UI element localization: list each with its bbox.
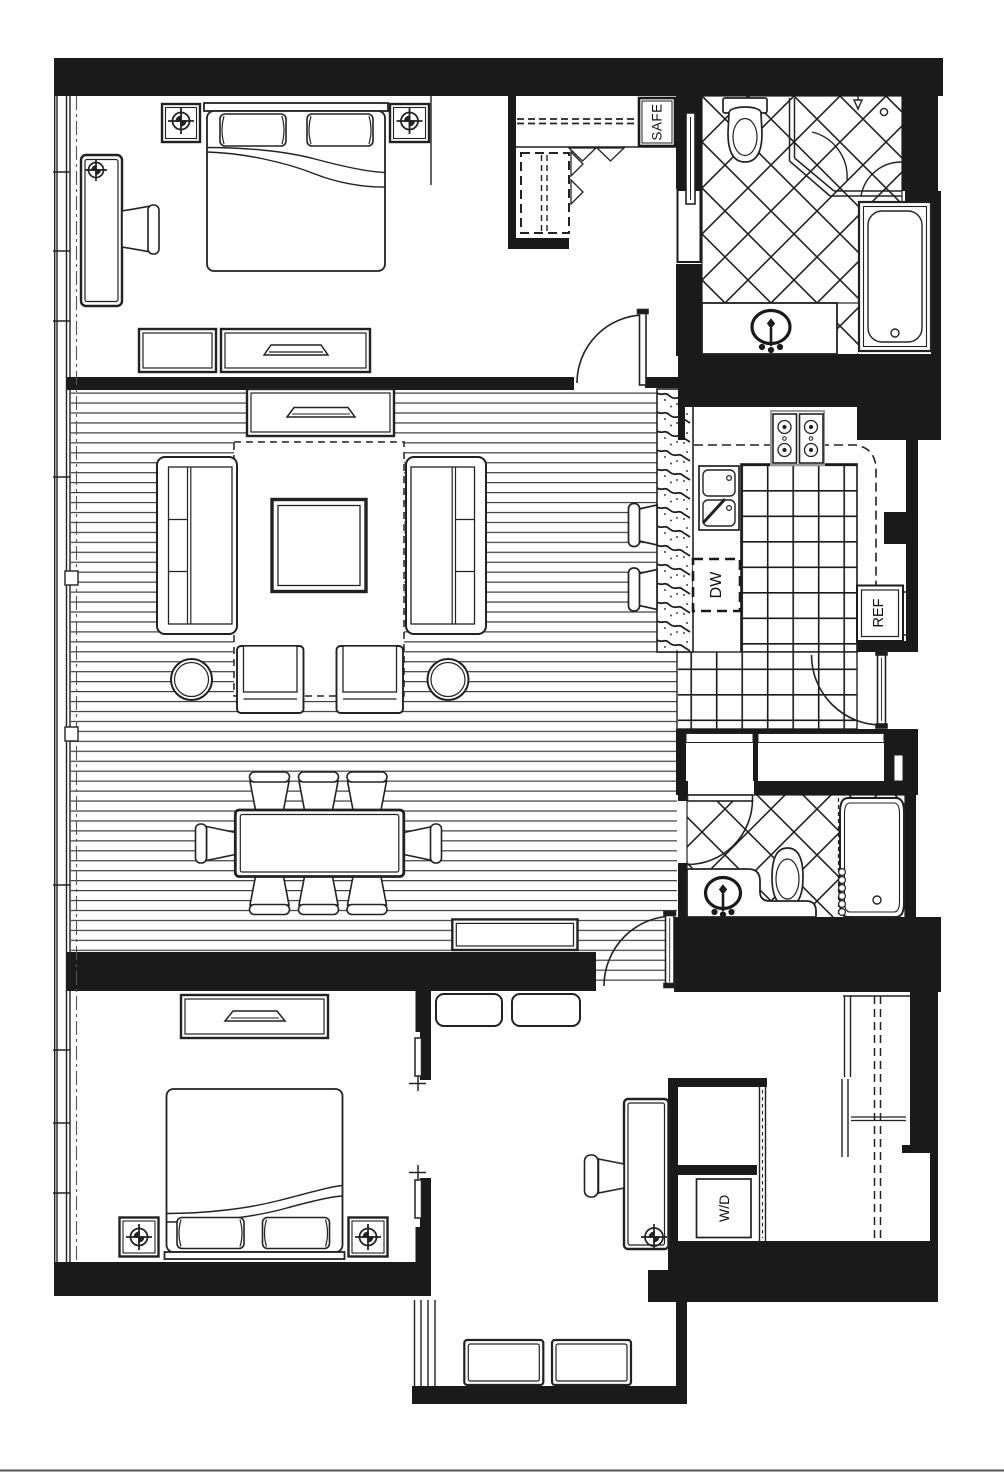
svg-text:SAFE: SAFE xyxy=(650,103,665,140)
svg-text:REF: REF xyxy=(871,598,887,627)
svg-text:W/D: W/D xyxy=(716,1195,732,1222)
svg-text:DW: DW xyxy=(708,571,725,599)
